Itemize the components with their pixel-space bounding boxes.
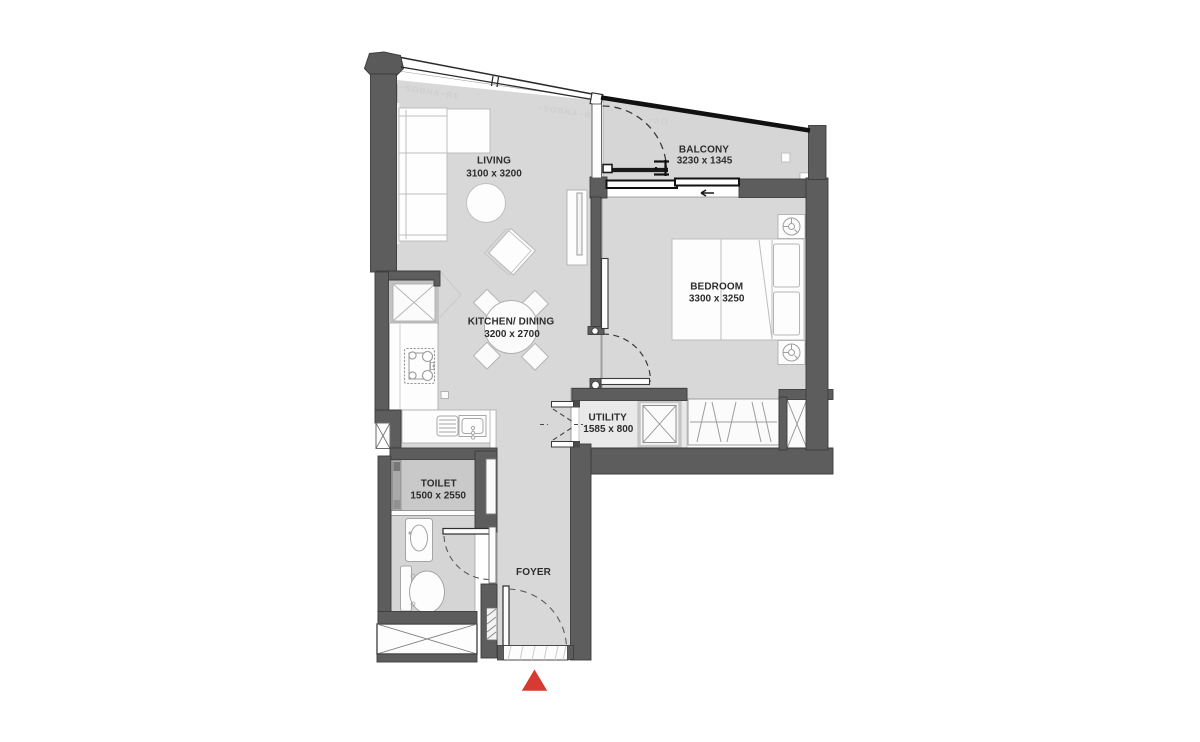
- svg-text:BALCONY: BALCONY: [679, 145, 729, 156]
- svg-text:BEDROOM: BEDROOM: [690, 282, 743, 293]
- svg-text:KITCHEN/ DINING: KITCHEN/ DINING: [468, 316, 555, 327]
- svg-text:LIVING: LIVING: [477, 156, 511, 167]
- svg-text:3300 x 3250: 3300 x 3250: [689, 293, 745, 304]
- svg-text:UTILITY: UTILITY: [588, 413, 627, 424]
- svg-text:1500 x 2550: 1500 x 2550: [410, 491, 466, 502]
- svg-text:TOILET: TOILET: [421, 478, 457, 489]
- svg-text:FOYER: FOYER: [516, 567, 552, 578]
- svg-text:3100 x 3200: 3100 x 3200: [466, 169, 522, 180]
- svg-text:1585 x 800: 1585 x 800: [583, 424, 633, 435]
- svg-text:3230 x 1345: 3230 x 1345: [677, 156, 733, 167]
- svg-text:3200 x 2700: 3200 x 2700: [484, 329, 540, 340]
